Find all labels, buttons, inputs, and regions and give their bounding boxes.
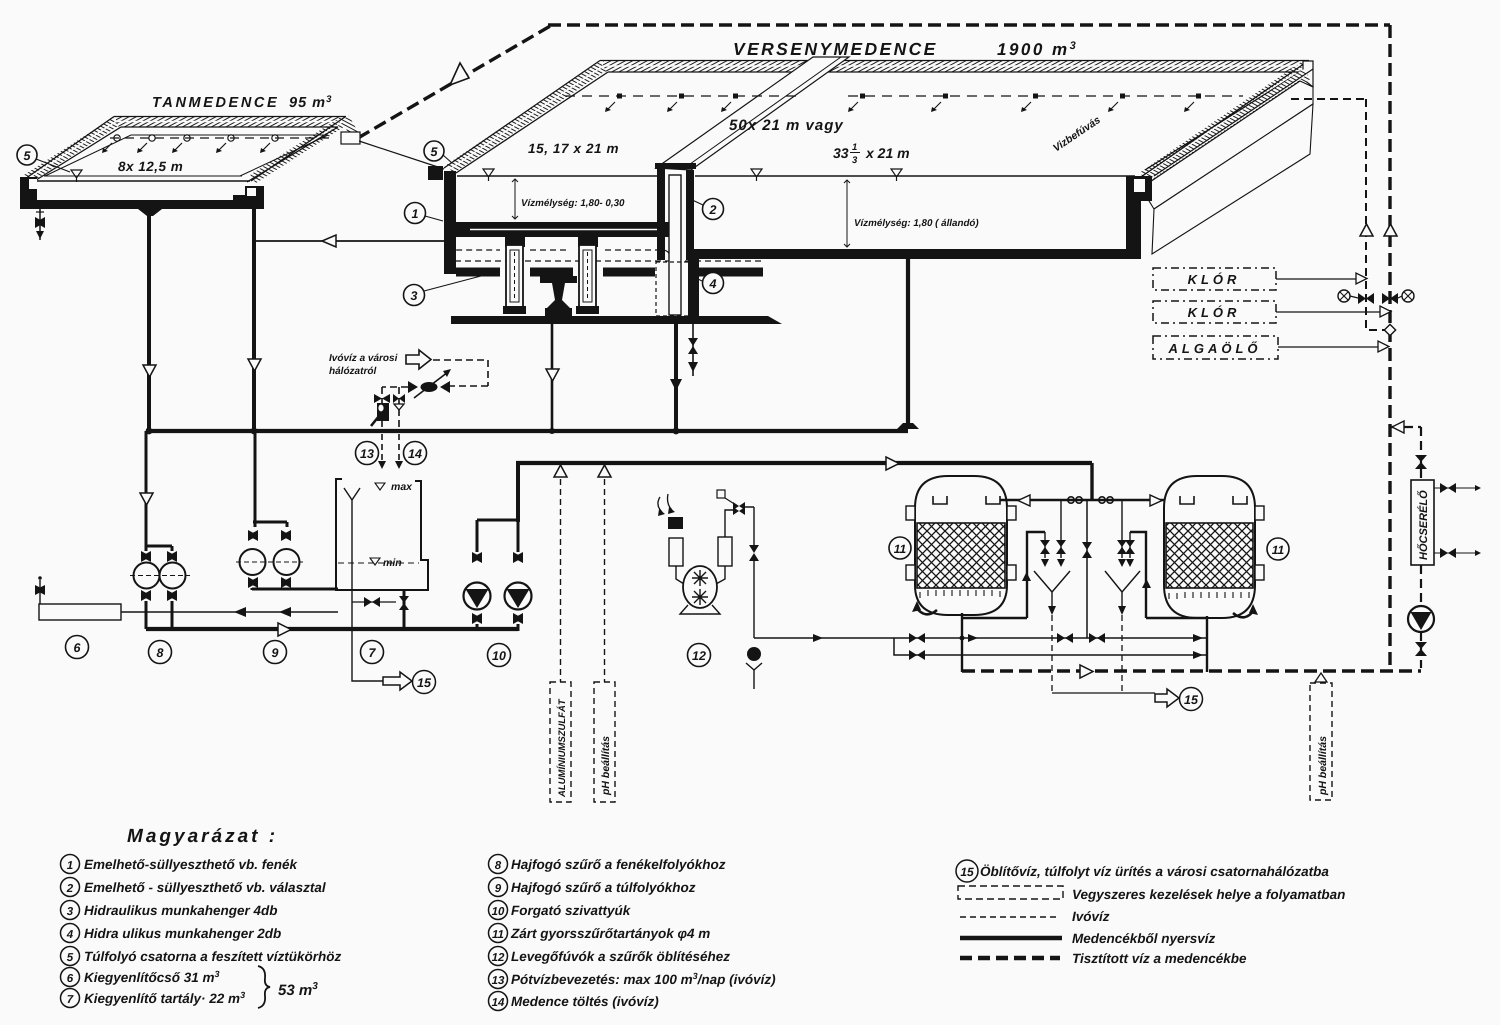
svg-text:HŐCSERÉLŐ: HŐCSERÉLŐ bbox=[1417, 490, 1430, 560]
svg-text:min: min bbox=[383, 557, 402, 569]
svg-text:8: 8 bbox=[495, 860, 502, 872]
svg-text:Hidraulikus munkahenger 4db: Hidraulikus munkahenger 4db bbox=[84, 903, 278, 918]
svg-text:11: 11 bbox=[894, 542, 907, 556]
svg-text:8x 12,5 m: 8x 12,5 m bbox=[118, 159, 183, 174]
svg-text:Kiegyenlítő tartály· 22 m3: Kiegyenlítő tartály· 22 m3 bbox=[84, 990, 245, 1006]
svg-text:5: 5 bbox=[67, 952, 74, 964]
svg-text:Zárt gyorsszűrőtartányok φ4: Zárt gyorsszűrőtartányok φ4 m bbox=[510, 926, 710, 941]
svg-text:15, 17 x 21 m: 15, 17 x 21 m bbox=[528, 141, 619, 156]
svg-text:3: 3 bbox=[852, 155, 858, 166]
svg-text:Hajfogó szűrő a túlfolyókho: Hajfogó szűrő a túlfolyókhoz bbox=[511, 880, 696, 895]
svg-text:7: 7 bbox=[369, 646, 377, 660]
svg-text:53 m3: 53 m3 bbox=[278, 981, 318, 999]
svg-text:3: 3 bbox=[411, 289, 418, 303]
svg-text:4: 4 bbox=[709, 277, 717, 291]
svg-text:Hajfogó szűrő a fenékelfoly: Hajfogó szűrő a fenékelfolyókhoz bbox=[511, 857, 726, 872]
svg-text:Magyarázat :: Magyarázat : bbox=[127, 826, 278, 847]
svg-text:95 m3: 95 m3 bbox=[289, 94, 332, 111]
svg-text:9: 9 bbox=[272, 646, 279, 660]
svg-text:1: 1 bbox=[852, 142, 857, 153]
svg-text:15: 15 bbox=[1184, 693, 1199, 707]
svg-text:12: 12 bbox=[692, 649, 706, 663]
svg-text:Öblítővíz, túlfolyt víz ürítés: Öblítővíz, túlfolyt víz ürítés a városi … bbox=[980, 864, 1329, 879]
svg-text:TANMEDENCE: TANMEDENCE bbox=[152, 95, 279, 111]
svg-text:Ivóvíz: Ivóvíz bbox=[1072, 909, 1110, 924]
svg-text:ALGAÖLŐ: ALGAÖLŐ bbox=[1168, 341, 1262, 356]
svg-text:9: 9 bbox=[495, 883, 502, 895]
svg-text:3: 3 bbox=[67, 906, 74, 918]
svg-text:Levegőfúvók a szűrők öblítés: Levegőfúvók a szűrők öblítéséhez bbox=[511, 949, 730, 964]
svg-text:8: 8 bbox=[157, 646, 164, 660]
svg-text:10: 10 bbox=[492, 649, 506, 663]
svg-text:hálózatról: hálózatról bbox=[329, 366, 376, 377]
svg-text:max: max bbox=[391, 481, 413, 493]
svg-text:15: 15 bbox=[960, 865, 974, 879]
svg-text:Vegyszeres kezelések helye: Vegyszeres kezelések helye a folyamatban bbox=[1072, 887, 1345, 902]
svg-text:Vízmélység: 1,80 ( állandó): Vízmélység: 1,80 ( állandó) bbox=[854, 218, 979, 229]
svg-text:1: 1 bbox=[412, 207, 419, 221]
svg-text:4: 4 bbox=[66, 929, 74, 941]
svg-text:Medencékből nyersvíz: Medencékből nyersvíz bbox=[1072, 931, 1216, 946]
svg-text:Emelhető-süllyeszthető vb. fe: Emelhető-süllyeszthető vb. fenék bbox=[84, 857, 299, 872]
svg-text:14: 14 bbox=[492, 997, 505, 1009]
svg-text:x 21 m: x 21 m bbox=[865, 145, 910, 161]
svg-text:11: 11 bbox=[492, 929, 504, 941]
svg-text:14: 14 bbox=[408, 447, 422, 461]
svg-text:VERSENYMEDENCE: VERSENYMEDENCE bbox=[733, 39, 938, 59]
svg-text:ALUMÍNIUMSZULFÁT: ALUMÍNIUMSZULFÁT bbox=[556, 698, 568, 798]
svg-text:Ivóvíz a városi: Ivóvíz a városi bbox=[329, 353, 398, 364]
svg-text:Kiegyenlítőcső 31 m3: Kiegyenlítőcső 31 m3 bbox=[84, 969, 220, 985]
svg-text:13: 13 bbox=[492, 975, 505, 987]
svg-text:Tisztított víz a medencékbe: Tisztított víz a medencékbe bbox=[1072, 951, 1247, 966]
svg-text:6: 6 bbox=[67, 973, 74, 985]
svg-text:Hidra ulikus munkahenger 2db: Hidra ulikus munkahenger 2db bbox=[84, 926, 281, 941]
svg-text:7: 7 bbox=[67, 994, 74, 1006]
svg-text:Medence töltés (ivóvíz): Medence töltés (ivóvíz) bbox=[511, 994, 659, 1009]
svg-text:13: 13 bbox=[360, 447, 374, 461]
svg-text:10: 10 bbox=[492, 906, 505, 918]
svg-text:pH beállítás: pH beállítás bbox=[1317, 736, 1329, 796]
svg-text:2: 2 bbox=[66, 883, 74, 895]
svg-text:1: 1 bbox=[67, 860, 73, 872]
svg-text:1900 m3: 1900 m3 bbox=[997, 40, 1078, 59]
svg-text:33: 33 bbox=[833, 145, 849, 161]
svg-text:2: 2 bbox=[709, 203, 717, 217]
svg-text:6: 6 bbox=[74, 641, 82, 655]
svg-text:Emelhető - süllyeszthető vb. v: Emelhető - süllyeszthető vb. választal bbox=[84, 880, 326, 895]
svg-text:50x 21 m vagy: 50x 21 m vagy bbox=[729, 117, 844, 134]
svg-text:Forgató szivattyúk: Forgató szivattyúk bbox=[511, 903, 632, 918]
svg-text:15: 15 bbox=[417, 676, 432, 690]
svg-text:5: 5 bbox=[24, 149, 32, 163]
svg-text:11: 11 bbox=[1272, 543, 1285, 557]
svg-text:KLÓR: KLÓR bbox=[1188, 272, 1241, 287]
svg-text:5: 5 bbox=[431, 145, 439, 159]
svg-text:Túlfolyó csatorna a feszített: Túlfolyó csatorna a feszített víztükörhö… bbox=[84, 949, 342, 964]
svg-text:Pótvízbevezetés: max 100 m3/na: Pótvízbevezetés: max 100 m3/nap (ivóvíz) bbox=[511, 971, 776, 987]
svg-text:KLÓR: KLÓR bbox=[1188, 305, 1241, 320]
svg-text:12: 12 bbox=[492, 952, 505, 964]
svg-text:Vízmélység: 1,80- 0,30: Vízmélység: 1,80- 0,30 bbox=[521, 198, 625, 209]
svg-text:pH beállítás: pH beállítás bbox=[600, 736, 612, 796]
